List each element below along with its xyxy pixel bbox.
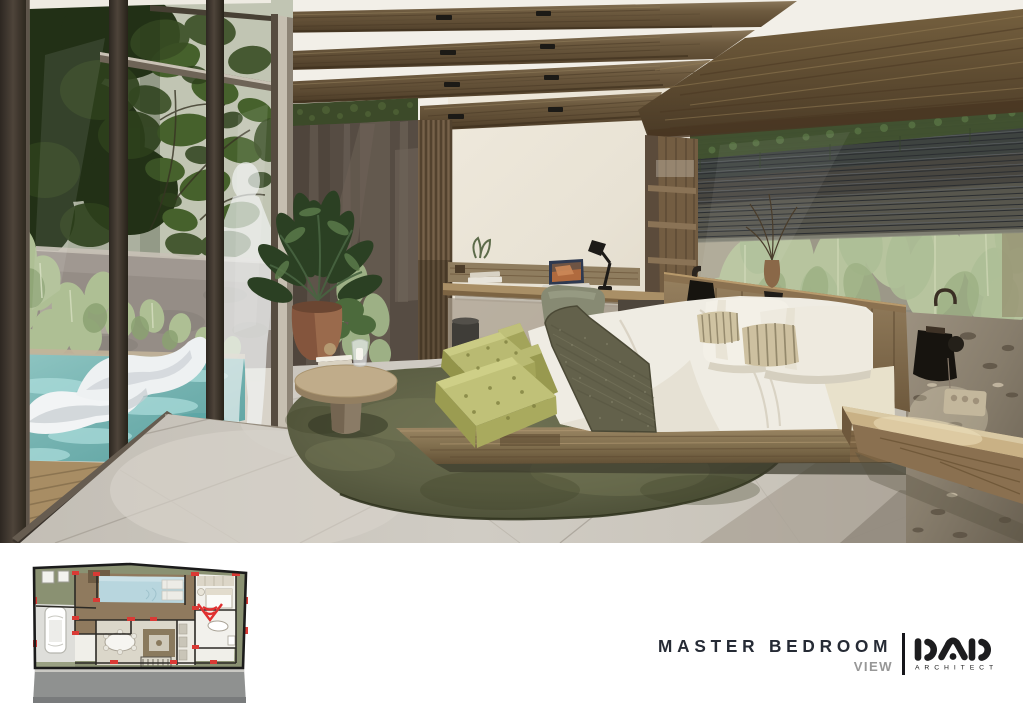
svg-text:MASTER BEDROOM: MASTER BEDROOM [658, 636, 892, 656]
svg-text:ARCHITECT: ARCHITECT [915, 665, 998, 672]
svg-text:VIEW: VIEW [854, 659, 893, 674]
